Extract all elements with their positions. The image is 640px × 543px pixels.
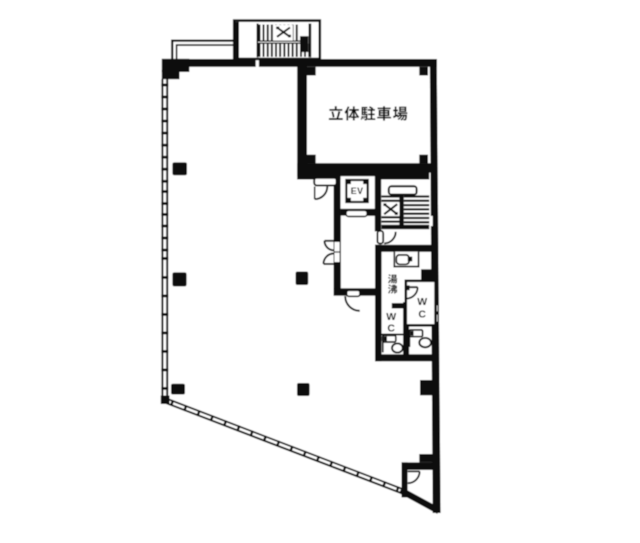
svg-text:W: W [417,296,427,308]
svg-text:EV: EV [351,186,364,196]
svg-text:C: C [387,322,395,334]
svg-text:C: C [418,308,426,320]
svg-text:W: W [386,311,396,323]
